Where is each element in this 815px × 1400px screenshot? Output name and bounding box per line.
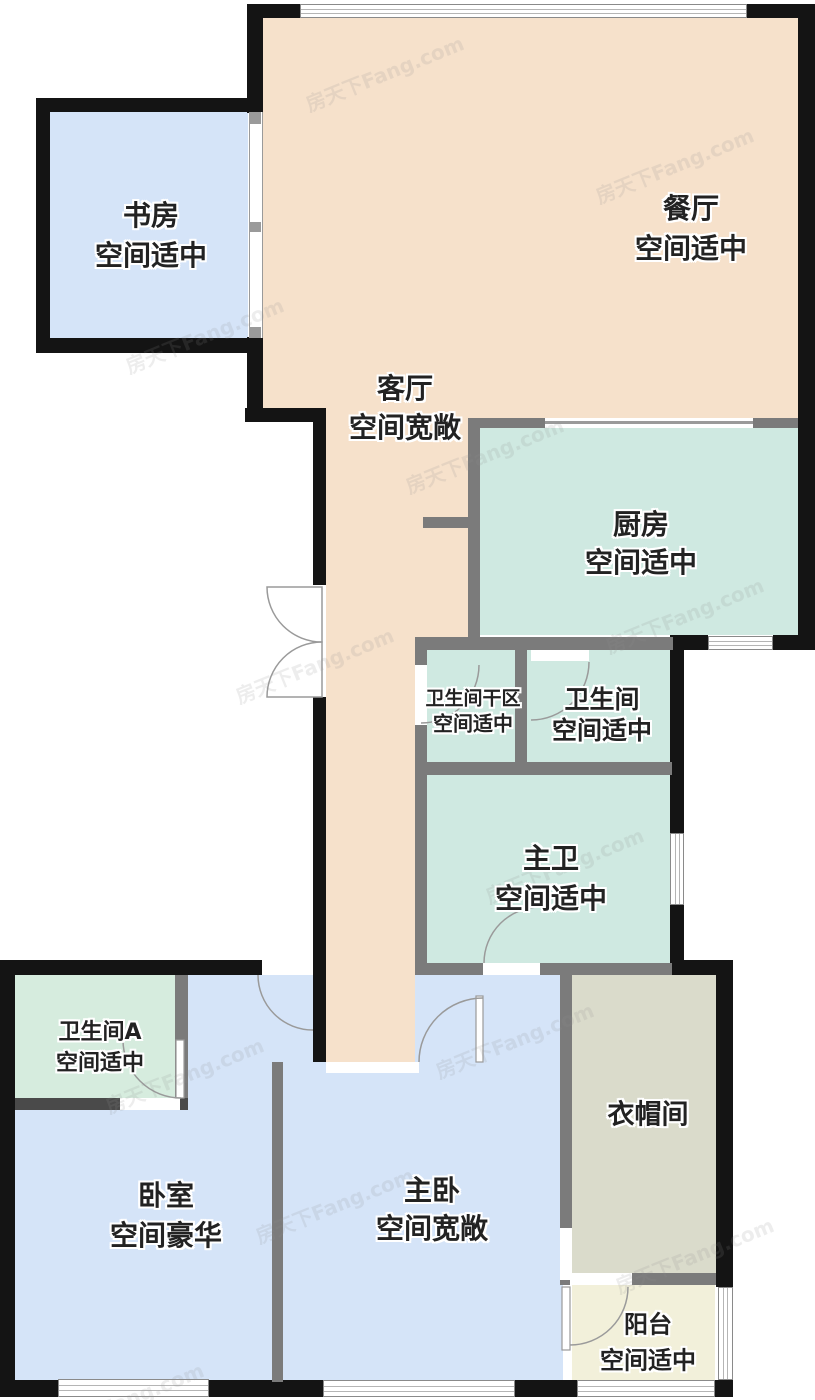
room-condition-bath: 空间适中 bbox=[552, 711, 652, 747]
room-name-kitchen: 厨房 bbox=[613, 503, 669, 543]
room-condition-dining: 空间适中 bbox=[635, 227, 747, 267]
room-name-dining: 餐厅 bbox=[663, 187, 719, 227]
room-condition-bath-dry: 空间适中 bbox=[433, 708, 513, 737]
room-condition-bath-a: 空间适中 bbox=[56, 1045, 144, 1077]
room-name-master-bath: 主卫 bbox=[523, 837, 579, 877]
door-arc bbox=[258, 975, 313, 1030]
room-name-study: 书房 bbox=[123, 194, 179, 234]
floor-plan: 房天下Fang.com 房天下Fang.com 房天下Fang.com 房天下F… bbox=[0, 0, 815, 1400]
room-condition-master-bath: 空间适中 bbox=[495, 877, 607, 917]
room-condition-study: 空间适中 bbox=[95, 234, 207, 274]
room-name-living: 客厅 bbox=[377, 367, 433, 407]
door-arc bbox=[419, 998, 483, 1062]
room-name-bath-a: 卫生间A bbox=[58, 1014, 141, 1046]
entrance-door-leaf bbox=[267, 642, 322, 697]
room-name-bath-dry: 卫生间干区 bbox=[425, 684, 520, 711]
room-condition-kitchen: 空间适中 bbox=[585, 541, 697, 581]
door-arc bbox=[570, 1287, 628, 1345]
room-name-master-bedroom: 主卧 bbox=[404, 1169, 460, 1209]
room-condition-balcony: 空间适中 bbox=[600, 1341, 696, 1376]
door-leaf bbox=[562, 1287, 570, 1350]
room-name-balcony: 阳台 bbox=[624, 1305, 672, 1340]
room-condition-bedroom: 空间豪华 bbox=[110, 1214, 222, 1254]
room-condition-living: 空间宽敞 bbox=[349, 406, 461, 446]
room-condition-master-bedroom: 空间宽敞 bbox=[376, 1207, 488, 1247]
door-leaf bbox=[476, 996, 483, 1062]
room-name-closet: 衣帽间 bbox=[608, 1093, 689, 1132]
room-name-bedroom: 卧室 bbox=[138, 1174, 194, 1214]
entrance-door-leaf bbox=[267, 587, 322, 642]
door-leaf bbox=[176, 1040, 184, 1098]
